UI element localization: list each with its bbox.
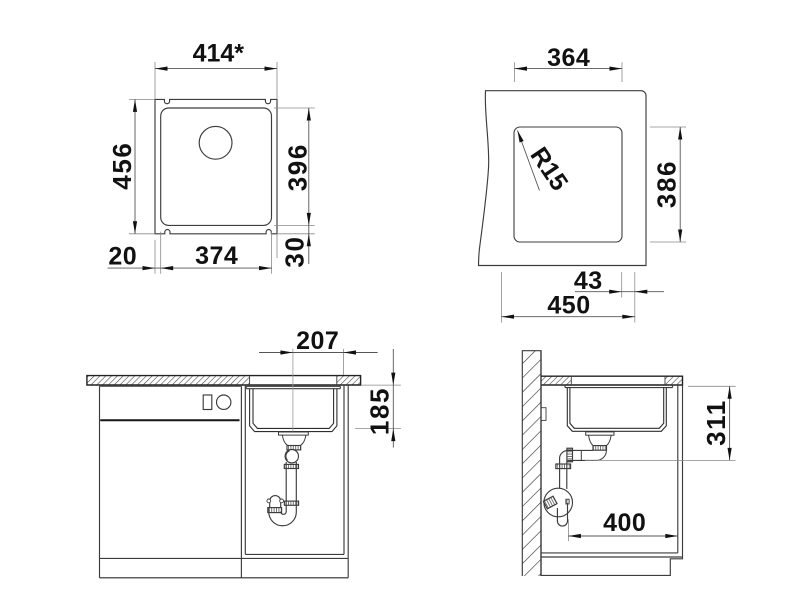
svg-text:374: 374 xyxy=(195,242,238,270)
svg-text:386: 386 xyxy=(652,160,682,208)
svg-text:400: 400 xyxy=(603,509,646,537)
svg-text:311: 311 xyxy=(701,399,731,446)
svg-text:20: 20 xyxy=(108,242,137,270)
svg-text:364: 364 xyxy=(547,44,590,72)
svg-text:414*: 414* xyxy=(193,40,245,68)
svg-text:456: 456 xyxy=(107,142,137,190)
svg-text:185: 185 xyxy=(364,387,394,435)
svg-text:207: 207 xyxy=(296,327,339,355)
svg-text:450: 450 xyxy=(547,292,590,320)
svg-text:30: 30 xyxy=(279,235,309,267)
svg-text:396: 396 xyxy=(283,143,313,191)
